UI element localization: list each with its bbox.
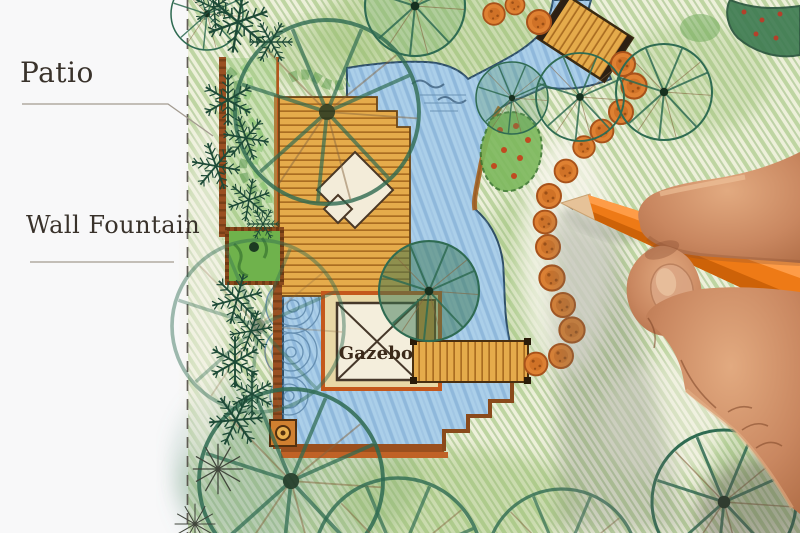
patio-label: Patio bbox=[20, 59, 94, 87]
boardwalk-steps bbox=[410, 338, 531, 384]
wall-fountain-label: Wall Fountain bbox=[26, 213, 200, 237]
gazebo-label: Gazebo bbox=[330, 345, 422, 363]
landscape-plan-photo: Patio Wall Fountain Gazebo bbox=[0, 0, 800, 533]
plan-drawing bbox=[0, 0, 800, 533]
pond-edging-terracotta bbox=[281, 452, 448, 458]
